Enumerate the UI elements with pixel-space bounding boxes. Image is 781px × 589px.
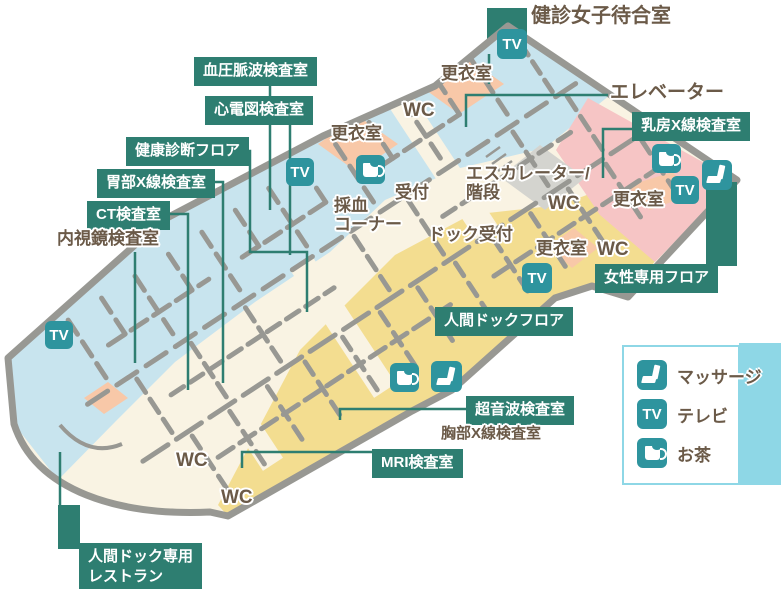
massage-chair-icon xyxy=(702,160,732,190)
tv-icon: TV xyxy=(45,321,73,349)
tv-icon: TV xyxy=(522,263,552,293)
legend-label: お茶 xyxy=(677,441,711,466)
tea-cup-icon xyxy=(637,438,667,468)
legend-label: マッサージ xyxy=(677,363,762,388)
room-label: 更衣室 xyxy=(613,190,664,209)
tea-cup-icon xyxy=(356,155,385,184)
room-label: 採血 コーナー xyxy=(334,196,402,234)
tv-icon: TV xyxy=(671,176,699,204)
room-label: WC xyxy=(221,487,253,508)
legend-row-massage: マッサージ xyxy=(637,360,738,390)
room-label: 胸部X線検査室 xyxy=(441,426,541,443)
room-label: WC xyxy=(597,239,629,260)
floor-label: 超音波検査室 xyxy=(466,396,574,425)
legend-row-tv: TV テレビ xyxy=(637,399,738,429)
floor-map-page: 血圧脈波検査室心電図検査室健康診断フロア胃部X線検査室CT検査室乳房X線検査室女… xyxy=(0,0,781,589)
room-label: 内視鏡検査室 xyxy=(57,229,159,248)
floor-label: 人間ドックフロア xyxy=(435,307,573,336)
legend-row-tea: お茶 xyxy=(637,438,738,468)
room-label: 更衣室 xyxy=(536,239,587,258)
room-label: 更衣室 xyxy=(331,124,382,143)
floor-label: 心電図検査室 xyxy=(205,96,313,125)
room-label: エレベーター xyxy=(610,82,724,103)
legend: マッサージ TV テレビ お茶 xyxy=(622,345,740,485)
tea-cup-icon xyxy=(390,363,419,392)
floor-label: 女性専用フロア xyxy=(595,264,718,293)
room-label: WC xyxy=(548,193,580,214)
massage-chair-icon xyxy=(637,360,667,390)
room-label: WC xyxy=(403,100,435,121)
room-label: 健診女子待合室 xyxy=(531,5,671,27)
tv-icon: TV xyxy=(497,29,527,59)
room-label: 受付 xyxy=(395,183,429,202)
floor-label: 健康診断フロア xyxy=(126,137,249,166)
floor-label: 乳房X線検査室 xyxy=(632,112,750,141)
massage-chair-icon xyxy=(431,361,462,392)
tv-icon: TV xyxy=(286,158,314,186)
room-label: WC xyxy=(176,450,208,471)
floor-label: 人間ドック専用 レストラン xyxy=(79,543,202,589)
floor-label: CT検査室 xyxy=(87,201,170,230)
room-label: ドック受付 xyxy=(428,225,513,244)
floor-label: 血圧脈波検査室 xyxy=(194,57,317,86)
floor-label: MRI検査室 xyxy=(372,449,463,478)
floor-label: 胃部X線検査室 xyxy=(97,169,215,198)
tea-cup-icon xyxy=(652,144,681,173)
leader-bar-women-floor xyxy=(706,182,737,266)
tv-icon: TV xyxy=(637,399,667,429)
leader-bar-restaurant xyxy=(58,505,80,549)
room-label: 更衣室 xyxy=(441,64,492,83)
legend-label: テレビ xyxy=(677,402,728,427)
